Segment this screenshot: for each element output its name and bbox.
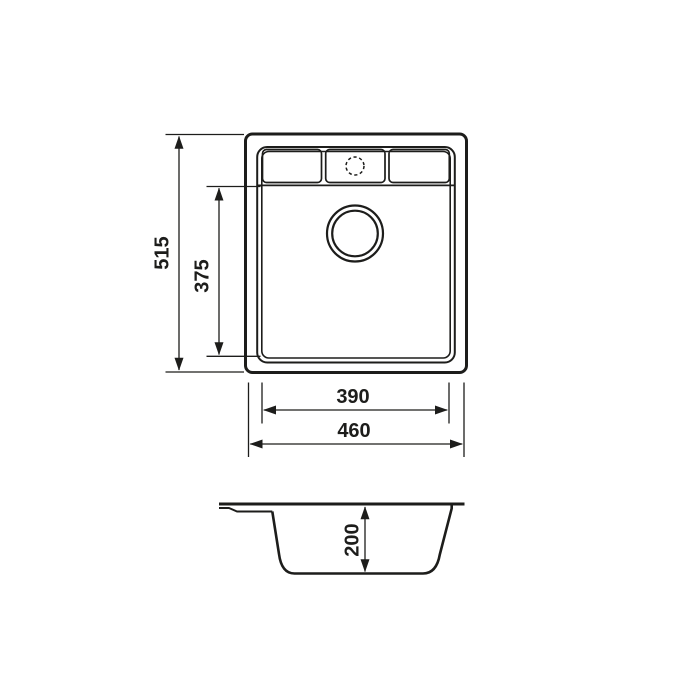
dimension-label-200: 200: [342, 523, 364, 556]
dimension-bowl-length: 375: [192, 187, 261, 357]
drain-outer-icon: [327, 206, 383, 262]
drain-inner-icon: [332, 211, 378, 257]
deck-tray-left: [263, 150, 322, 183]
sink-dimension-diagram: 515 375 390 460 200: [0, 0, 700, 700]
dimension-bowl-width: 390: [262, 383, 449, 424]
dimension-label-460: 460: [337, 420, 370, 442]
dimension-label-375: 375: [192, 259, 214, 292]
technical-drawing-canvas: 515 375 390 460 200: [0, 0, 700, 700]
tap-hole-icon: [346, 157, 364, 175]
sink-rim-outline: [257, 147, 455, 363]
rim-underside-line: [219, 508, 272, 512]
dimension-bowl-depth: 200: [342, 507, 366, 572]
dimension-label-390: 390: [336, 386, 369, 408]
sink-outer-outline: [246, 134, 467, 373]
dimension-label-515: 515: [152, 236, 174, 269]
top-view: [246, 134, 467, 373]
deck-tray-center: [326, 150, 385, 183]
deck-tray-right: [389, 150, 449, 183]
dimension-overall-length: 515: [152, 135, 245, 373]
